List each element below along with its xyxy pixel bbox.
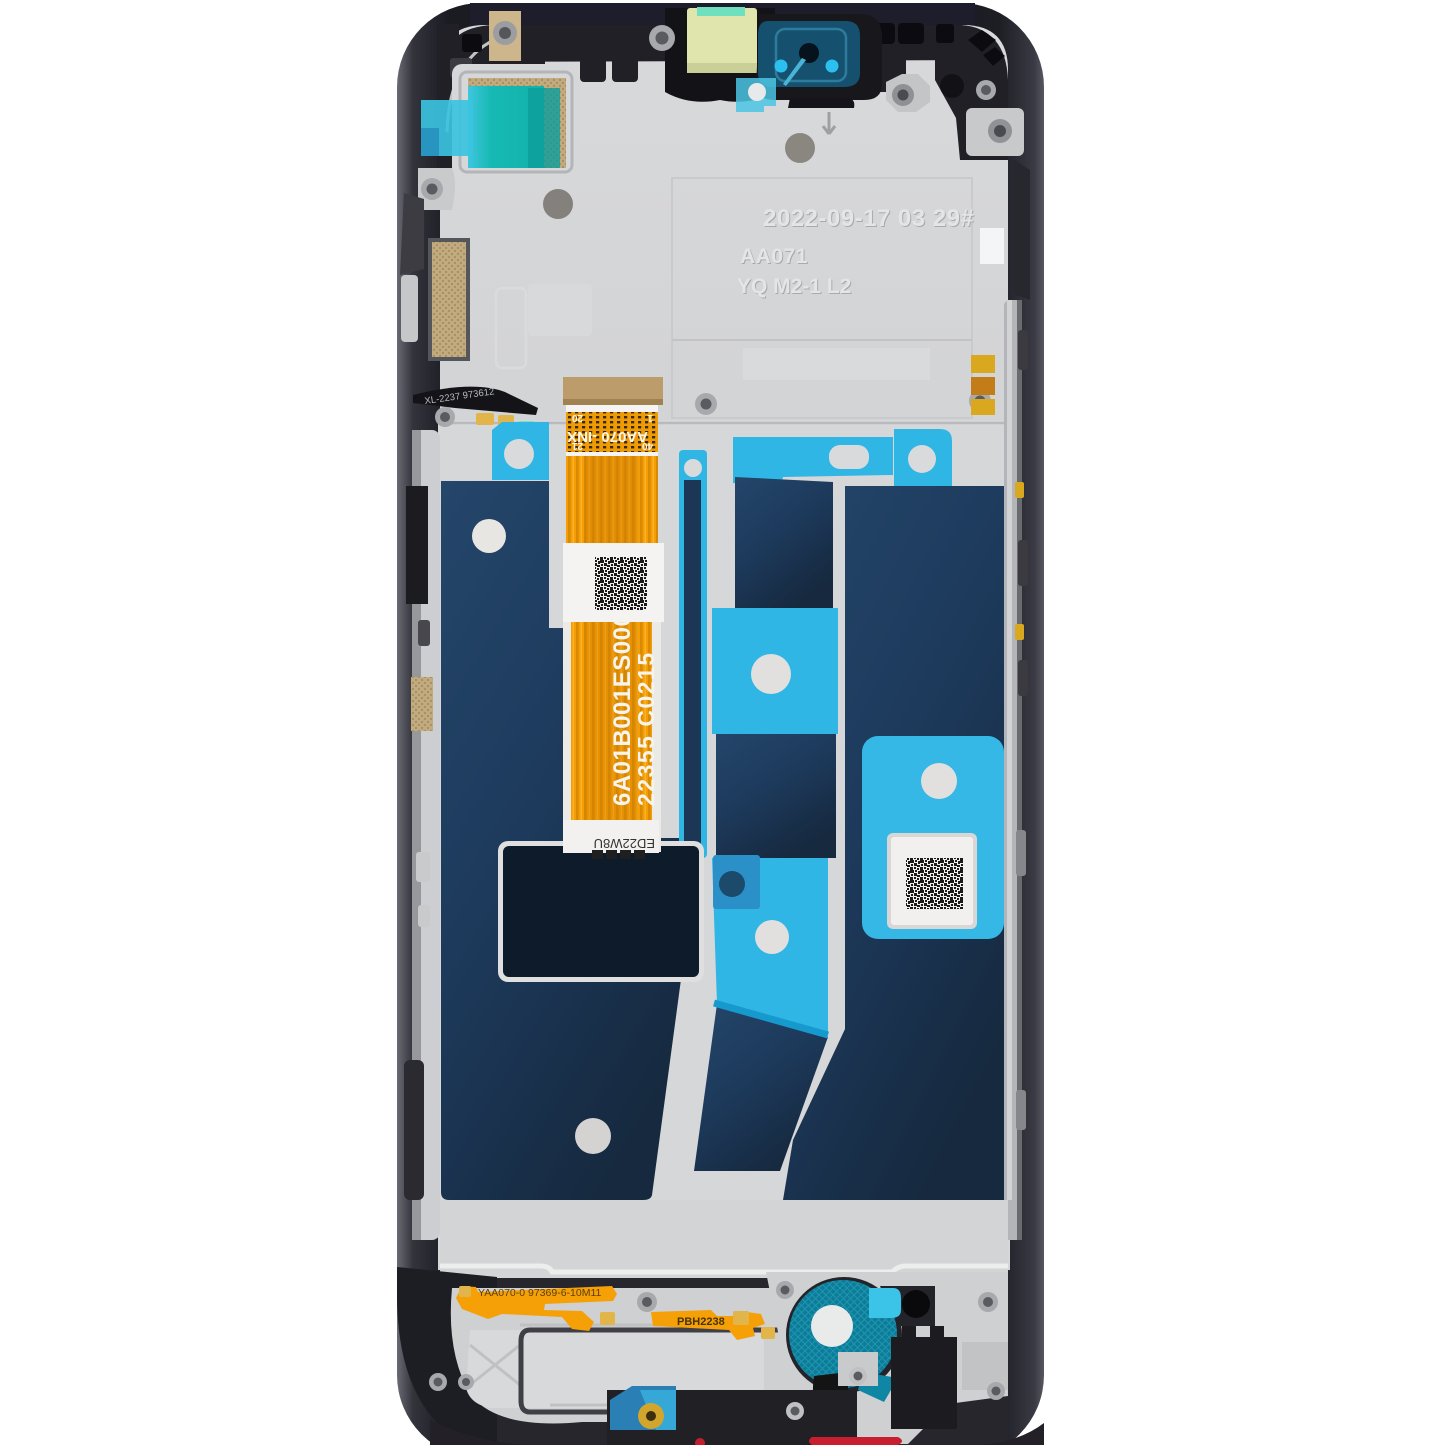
svg-text:20: 20 (571, 412, 583, 423)
svg-text:YAA070-0 97369-6-10M11: YAA070-0 97369-6-10M11 (478, 1287, 602, 1299)
svg-text:6A01B001ES000: 6A01B001ES000 (609, 613, 636, 806)
svg-text:22355 C0215: 22355 C0215 (633, 651, 659, 806)
svg-text:40: 40 (641, 440, 653, 451)
svg-text:2022-09-17 03 29#: 2022-09-17 03 29# (763, 205, 974, 232)
svg-text:PBH2238: PBH2238 (677, 1316, 725, 1328)
svg-text:21: 21 (571, 440, 583, 451)
svg-text:1: 1 (647, 412, 653, 423)
svg-text:ED22W8U: ED22W8U (594, 836, 655, 851)
svg-text:YQ M2-1 L2: YQ M2-1 L2 (737, 275, 851, 298)
svg-text:AA071: AA071 (740, 245, 808, 268)
